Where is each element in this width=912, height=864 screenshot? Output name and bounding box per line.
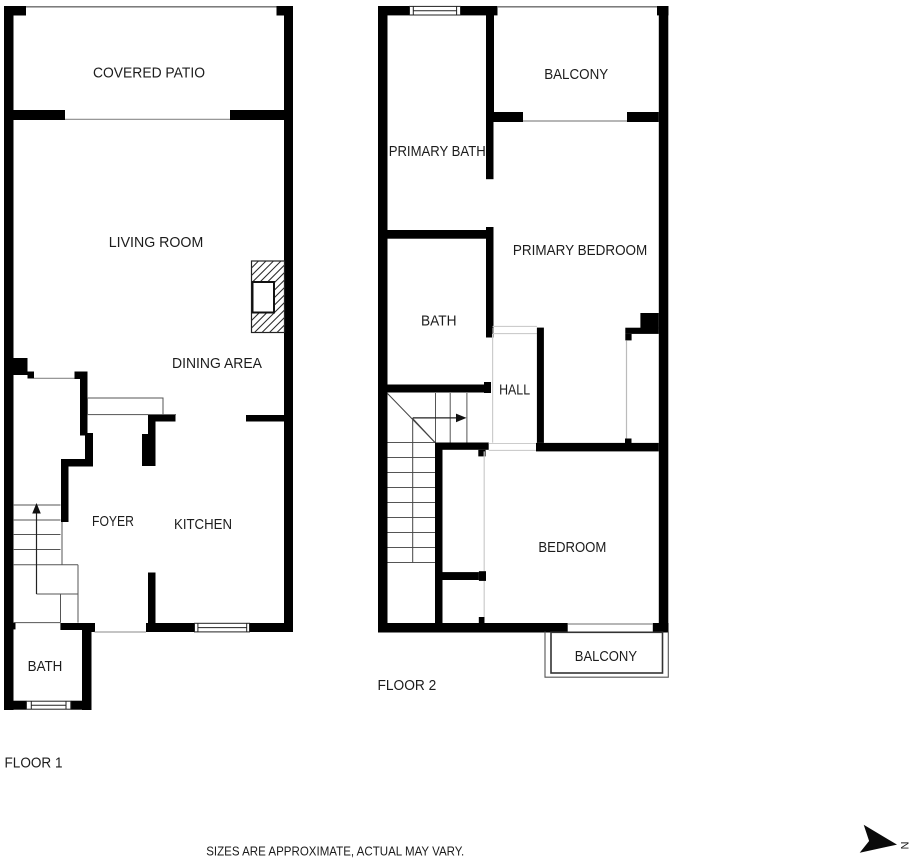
svg-text:PRIMARY BEDROOM: PRIMARY BEDROOM [513, 242, 647, 259]
svg-text:FOYER: FOYER [92, 513, 134, 530]
svg-text:BATH: BATH [28, 658, 63, 675]
svg-text:FLOOR 1: FLOOR 1 [5, 754, 63, 771]
svg-text:COVERED PATIO: COVERED PATIO [93, 65, 205, 82]
svg-text:PRIMARY BATH: PRIMARY BATH [389, 143, 486, 160]
svg-text:HALL: HALL [499, 382, 530, 399]
svg-text:BALCONY: BALCONY [575, 648, 637, 665]
svg-text:N: N [898, 842, 910, 850]
svg-text:DINING AREA: DINING AREA [172, 355, 262, 372]
svg-text:BALCONY: BALCONY [544, 66, 608, 83]
svg-text:LIVING ROOM: LIVING ROOM [109, 234, 204, 251]
svg-text:BEDROOM: BEDROOM [538, 539, 606, 556]
svg-text:FLOOR 2: FLOOR 2 [378, 677, 437, 694]
svg-text:BATH: BATH [421, 312, 457, 329]
svg-text:SIZES ARE APPROXIMATE, ACTUAL: SIZES ARE APPROXIMATE, ACTUAL MAY VARY. [206, 845, 464, 859]
svg-text:KITCHEN: KITCHEN [174, 516, 232, 533]
